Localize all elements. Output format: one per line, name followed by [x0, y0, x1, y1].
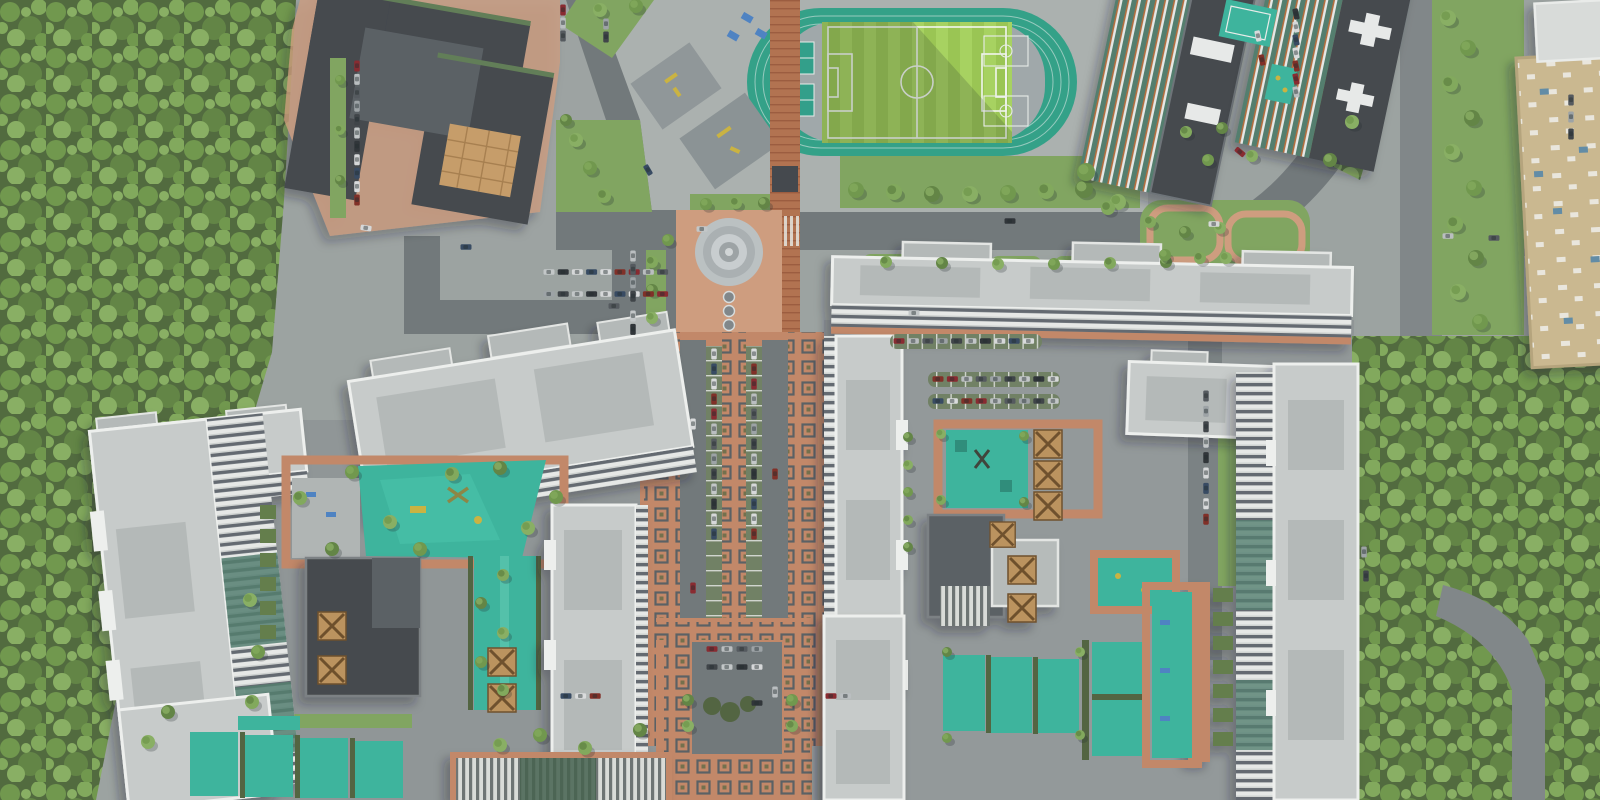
aerial-render	[0, 0, 1600, 800]
scene	[0, 0, 1600, 800]
light-overlay	[0, 0, 1600, 800]
